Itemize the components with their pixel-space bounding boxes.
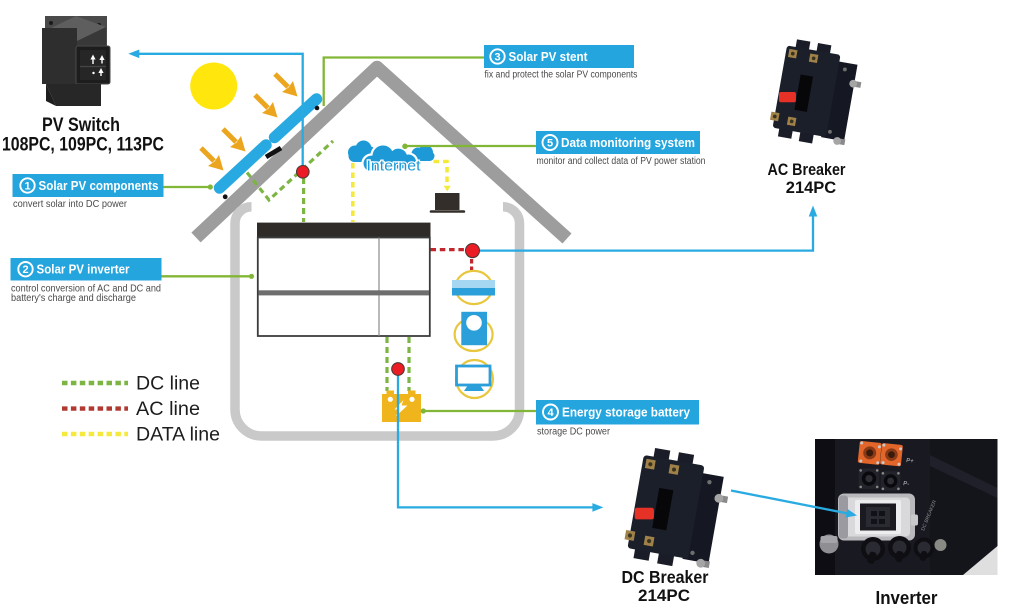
svg-text:monitor and collect data of PV: monitor and collect data of PV power sta… bbox=[537, 156, 706, 167]
svg-text:storage DC power: storage DC power bbox=[537, 427, 611, 438]
svg-text:108PC, 109PC, 113PC: 108PC, 109PC, 113PC bbox=[2, 135, 164, 156]
svg-text:P+: P+ bbox=[906, 458, 915, 465]
svg-text:214PC: 214PC bbox=[638, 586, 690, 605]
svg-text:AC Breaker: AC Breaker bbox=[768, 161, 846, 179]
svg-text:battery's charge and discharge: battery's charge and discharge bbox=[11, 293, 137, 304]
svg-text:Data monitoring system: Data monitoring system bbox=[561, 136, 695, 150]
svg-text:Internet: Internet bbox=[367, 159, 421, 175]
svg-text:5: 5 bbox=[547, 138, 553, 150]
svg-text:Energy storage battery: Energy storage battery bbox=[562, 406, 690, 420]
svg-text:DC Breaker: DC Breaker bbox=[622, 567, 709, 587]
svg-text:Inverter: Inverter bbox=[876, 587, 938, 608]
svg-text:AC line: AC line bbox=[136, 399, 200, 420]
svg-text:P-: P- bbox=[903, 481, 910, 488]
svg-text:3: 3 bbox=[494, 52, 500, 64]
svg-text:DATA line: DATA line bbox=[136, 425, 220, 446]
svg-text:214PC: 214PC bbox=[786, 179, 837, 197]
svg-text:2: 2 bbox=[22, 264, 28, 276]
svg-text:Solar PV components: Solar PV components bbox=[39, 179, 159, 193]
svg-text:fix and protect the solar PV c: fix and protect the solar PV components bbox=[485, 70, 638, 81]
svg-text:PV Switch: PV Switch bbox=[42, 115, 120, 136]
svg-text:convert solar into DC power: convert solar into DC power bbox=[13, 199, 128, 210]
svg-text:Solar PV stent: Solar PV stent bbox=[509, 50, 589, 64]
svg-text:Solar PV inverter: Solar PV inverter bbox=[37, 263, 130, 277]
svg-text:DC line: DC line bbox=[136, 374, 200, 395]
svg-text:1: 1 bbox=[24, 181, 30, 193]
svg-text:4: 4 bbox=[547, 407, 554, 419]
